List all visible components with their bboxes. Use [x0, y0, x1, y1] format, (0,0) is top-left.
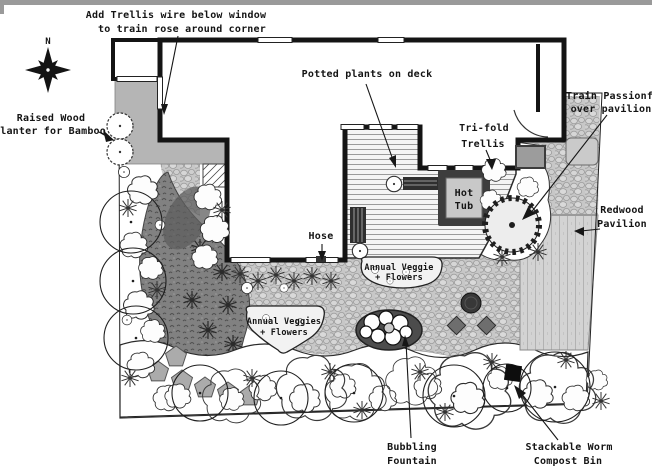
label-pavilion-2: Pavilion — [597, 218, 647, 230]
garage-door — [117, 77, 157, 82]
patio-table — [461, 293, 481, 313]
window-edge-top — [0, 0, 652, 5]
garage — [113, 40, 160, 79]
label-compost-2: Compost Bin — [534, 455, 602, 467]
label-raised-planter-1: Raised Wood — [17, 112, 85, 124]
label-trifold-2: Trellis — [461, 138, 505, 150]
label-compost-1: Stackable Worm — [525, 442, 612, 453]
veggie-patio-label-line2: + Flowers — [260, 328, 308, 338]
steps-hatch — [203, 164, 226, 187]
label-passionfruit-1: Train Passionfruit — [566, 90, 652, 102]
label-fountain-1: Bubbling — [387, 441, 437, 453]
planter-box-vertical — [350, 207, 366, 243]
window-edge-corner — [0, 0, 4, 14]
label-add-trellis-1: Add Trellis wire below window — [86, 9, 267, 21]
worm-compost-bin — [504, 364, 522, 382]
label-hose: Hose — [309, 231, 334, 242]
hot-tub-label-line2: Tub — [455, 201, 474, 212]
bubbling-fountain — [356, 310, 422, 350]
compass-north-label: N — [45, 37, 51, 47]
label-raised-planter-2: Planter for Bamboo — [0, 126, 106, 137]
label-passionfruit-2: over pavilion — [571, 103, 652, 115]
breezeway — [539, 44, 561, 136]
veggie-deck-label-line1: Annual Veggie — [364, 262, 433, 273]
garden-plan: Hot Tub Annual Veggie + Flowers A — [0, 0, 652, 472]
label-pavilion-1: Redwood — [600, 205, 644, 216]
plan-canvas: Hot Tub Annual Veggie + Flowers A — [0, 0, 652, 472]
label-add-trellis-2: to train rose around corner — [98, 23, 266, 35]
trifold-trellis-panel — [516, 146, 545, 168]
veggie-patio-label-line1: Annual Veggies — [247, 316, 321, 327]
veggie-deck-label-line2: + Flowers — [375, 273, 423, 283]
label-fountain-2: Fountain — [387, 455, 437, 467]
hot-tub-label-line1: Hot — [455, 188, 474, 199]
passionfruit-vine — [485, 198, 539, 252]
label-potted-plants: Potted plants on deck — [302, 69, 433, 80]
planter-box-horizontal — [403, 177, 438, 190]
label-trifold-1: Tri-fold — [459, 122, 509, 134]
